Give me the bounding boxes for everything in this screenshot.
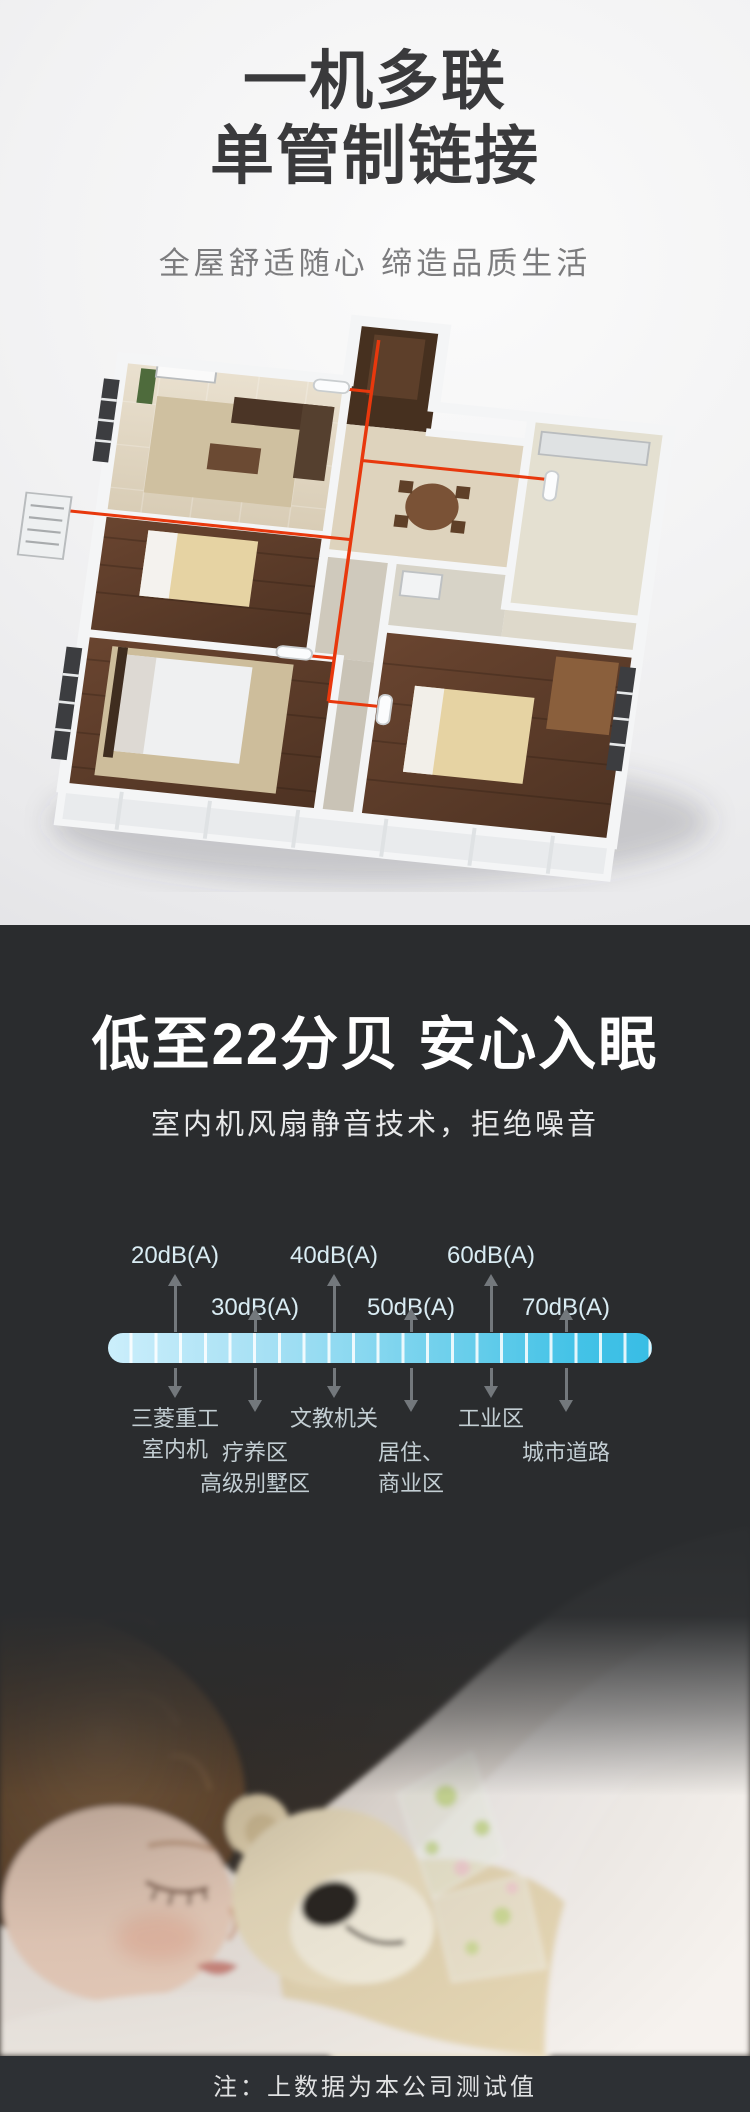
footnote-bar: 注：上数据为本公司测试值 (0, 2056, 750, 2112)
hero-title-line2: 单管制链接 (210, 120, 540, 192)
category-line: 居住、 (378, 1437, 444, 1468)
category-label-urban-road: 城市道路 (522, 1437, 610, 1468)
down-arrow-icon (484, 1368, 498, 1398)
floorplan-3d-illustration (0, 292, 750, 892)
down-arrow-icon (404, 1368, 418, 1412)
down-arrow-icon (327, 1368, 341, 1398)
up-arrow-icon (404, 1308, 418, 1332)
category-label-industrial: 工业区 (458, 1403, 524, 1434)
noise-title: 低至22分贝 安心入眠 (0, 997, 750, 1081)
decibel-chart: 20dB(A) 三菱重工 室内机 30dB(A) 疗养区 高级别墅区 40dB(… (0, 1240, 750, 1496)
category-line: 疗养区 (200, 1437, 310, 1468)
up-arrow-icon (248, 1308, 262, 1332)
tick-label-20db: 20dB(A) (131, 1242, 219, 1270)
category-line: 城市道路 (522, 1437, 610, 1468)
sleeping-child-with-teddy-photo (0, 1496, 750, 2056)
photo-svg (0, 1496, 750, 2056)
up-arrow-icon (559, 1308, 573, 1332)
category-line: 高级别墅区 (200, 1468, 310, 1499)
up-arrow-icon (327, 1274, 341, 1332)
noise-section: 低至22分贝 安心入眠 室内机风扇静音技术，拒绝噪音 20dB(A) 三菱重工 … (0, 925, 750, 2112)
down-arrow-icon (248, 1368, 262, 1412)
hero-title: 一机多联 单管制链接 (0, 44, 750, 194)
category-line: 商业区 (378, 1468, 444, 1499)
down-arrow-icon (168, 1368, 182, 1398)
category-line: 三菱重工 (131, 1403, 219, 1434)
scale-bar-segments (108, 1333, 652, 1363)
photo-top-fade (0, 1496, 750, 1796)
category-label-sanatorium-villa: 疗养区 高级别墅区 (200, 1437, 310, 1499)
floorplan-svg (0, 292, 750, 892)
category-line: 文教机关 (290, 1403, 378, 1434)
hero-section: 一机多联 单管制链接 全屋舒适随心 缔造品质生活 (0, 0, 750, 925)
hero-title-line1: 一机多联 (243, 45, 507, 117)
outdoor-unit-icon (18, 493, 72, 560)
hero-subtitle: 全屋舒适随心 缔造品质生活 (0, 238, 750, 283)
down-arrow-icon (559, 1368, 573, 1412)
category-line: 工业区 (458, 1403, 524, 1434)
up-arrow-icon (484, 1274, 498, 1332)
decibel-scale-bar (108, 1333, 652, 1363)
tick-label-40db: 40dB(A) (290, 1242, 378, 1270)
footnote-text: 注：上数据为本公司测试值 (213, 2067, 537, 2102)
category-label-residential-commercial: 居住、 商业区 (378, 1437, 444, 1499)
up-arrow-icon (168, 1274, 182, 1332)
tick-label-60db: 60dB(A) (447, 1242, 535, 1270)
product-detail-page: 一机多联 单管制链接 全屋舒适随心 缔造品质生活 (0, 0, 750, 2112)
category-label-education: 文教机关 (290, 1403, 378, 1434)
noise-subtitle: 室内机风扇静音技术，拒绝噪音 (0, 1101, 750, 1143)
